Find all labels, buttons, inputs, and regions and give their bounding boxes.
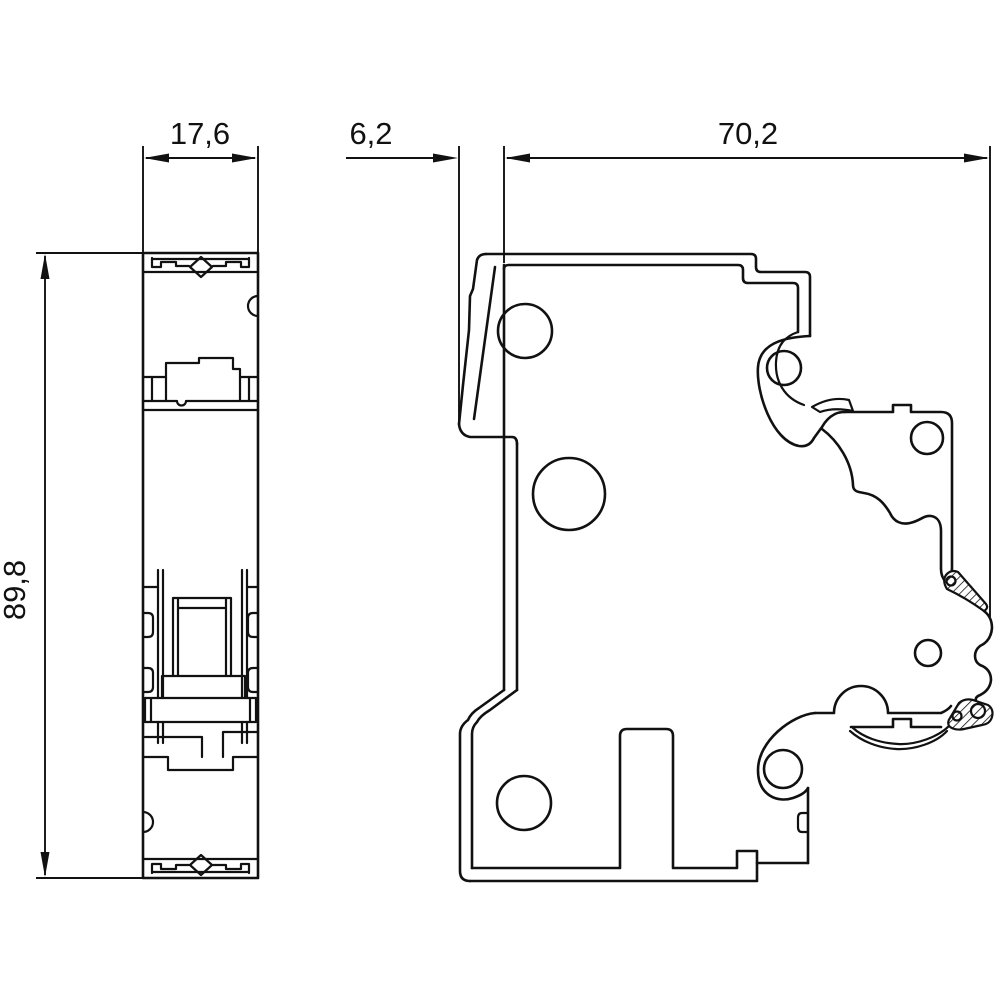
dimension-height: 89,8 xyxy=(0,253,143,878)
bottom-edge-inner-and-slot xyxy=(472,729,757,868)
lower-ear-hole xyxy=(764,750,802,788)
upper-terminal-top xyxy=(152,358,249,377)
arrowhead-right-icon xyxy=(964,154,989,163)
dimension-width: 17,6 xyxy=(143,116,258,253)
top-clip-detail xyxy=(152,258,249,267)
dimension-lever-label: 6,2 xyxy=(349,116,392,151)
scallop-profile xyxy=(822,429,946,582)
lever-posts xyxy=(158,570,247,698)
front-view xyxy=(143,253,258,878)
right-block-hole-top xyxy=(911,422,943,454)
toggle-lever-inner xyxy=(474,267,495,419)
dimension-height-label: 89,8 xyxy=(0,560,32,620)
front-view-outline xyxy=(143,253,258,878)
mcb-dimensional-drawing: 17,6 6,2 70,2 89,8 xyxy=(0,0,1000,1000)
bottom-clip-detail xyxy=(152,864,249,873)
right-edge-notch xyxy=(248,296,258,316)
toggle-base-steps xyxy=(162,676,245,698)
technical-drawing-canvas: 17,6 6,2 70,2 89,8 xyxy=(0,0,1000,1000)
left-edge-notch xyxy=(143,812,153,832)
rivet-hole-center xyxy=(533,458,605,530)
lever-recess-floor xyxy=(459,424,517,444)
arrowhead-left-icon xyxy=(505,154,530,163)
side-view xyxy=(459,254,993,881)
upper-terminal-bottom xyxy=(152,401,249,406)
upper-terminal-inner xyxy=(166,377,240,401)
rivet-hole-bottom xyxy=(497,776,551,830)
edge-tabs xyxy=(143,613,258,692)
arrowhead-right-icon xyxy=(232,154,257,163)
rivet-hole-top xyxy=(498,304,552,358)
lower-jog-outer xyxy=(460,690,504,881)
clip-arm-lower-arc xyxy=(850,731,947,749)
upper-terminal xyxy=(143,358,258,410)
lower-terminal-profile xyxy=(143,757,258,770)
latch-wedge xyxy=(812,399,853,412)
top-edge-inner xyxy=(504,265,798,332)
dimension-depth-label: 70,2 xyxy=(718,116,778,151)
rail-seat-line xyxy=(851,719,941,727)
arrowhead-left-icon xyxy=(144,154,169,163)
arrowhead-down-icon xyxy=(41,852,50,877)
dimension-width-label: 17,6 xyxy=(170,116,230,151)
lower-clip-wedge xyxy=(948,699,992,729)
toggle-front xyxy=(173,598,231,676)
lower-terminal xyxy=(143,732,258,770)
right-block-hole-bottom xyxy=(915,640,941,666)
bottom-edge-outer xyxy=(470,863,808,881)
arrowhead-up-icon xyxy=(41,254,50,279)
din-rail-fingers xyxy=(975,611,992,701)
upper-ear-outline xyxy=(758,336,845,446)
dimension-depth: 70,2 xyxy=(504,116,990,617)
lever-base-bar xyxy=(145,698,256,722)
front-lever-assembly xyxy=(143,570,258,743)
upper-ear-hole xyxy=(767,351,801,385)
arrowhead-right-icon xyxy=(433,154,458,163)
dome-and-base-line xyxy=(815,686,951,713)
lower-ear-tab xyxy=(798,813,808,832)
toggle-lever-outer xyxy=(459,254,486,424)
dimension-lever: 6,2 xyxy=(346,116,459,424)
